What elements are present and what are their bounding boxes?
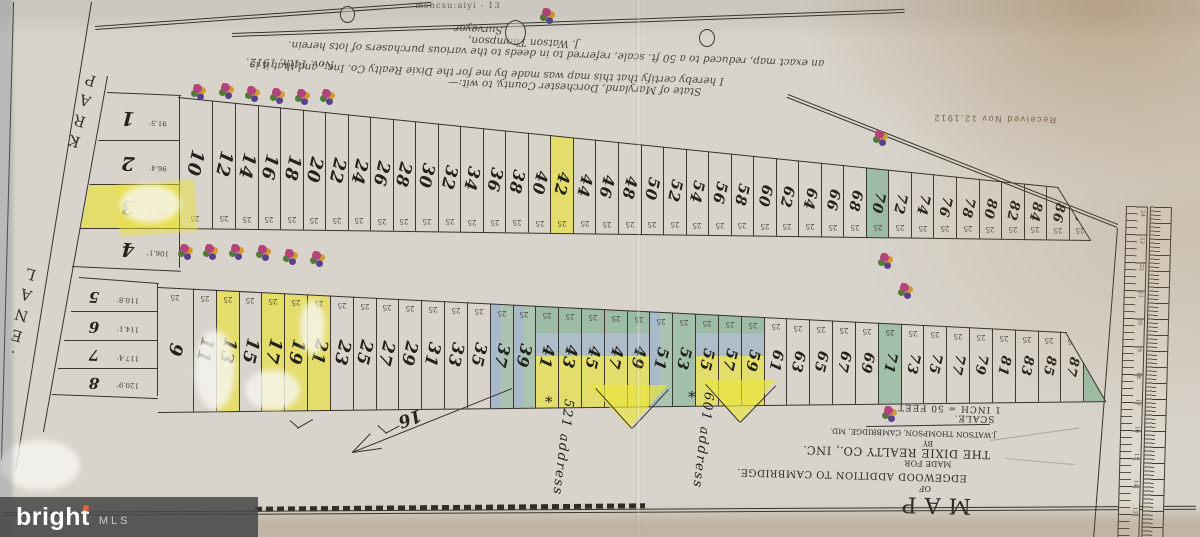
lot-depth-dim: 91.5' <box>149 118 167 127</box>
lot-number: 17 <box>261 336 286 366</box>
flower-mark <box>193 84 202 93</box>
ruler-number: 21 <box>1137 291 1143 298</box>
lot-cell-39: 3925 <box>513 283 536 416</box>
lot-number: 1 <box>121 107 135 130</box>
lot-cell-75: 7525 <box>923 283 946 416</box>
lot-width-dim: 25 <box>269 297 278 305</box>
lot-cell-71: 7125 <box>878 283 901 416</box>
lot-number: 74 <box>912 193 932 217</box>
ruler-number: 16 <box>1134 426 1140 433</box>
lot-width-dim: 25 <box>513 218 522 226</box>
lot-number: 57 <box>719 347 742 373</box>
lot-width-dim: 25 <box>680 318 689 326</box>
sheet-left-border <box>1 2 14 460</box>
lot-width-dim: 25 <box>783 222 792 230</box>
lot-number: 6 <box>88 317 99 336</box>
flower-mark <box>297 89 306 98</box>
lot-width-dim: 25 <box>171 293 180 301</box>
lot-number: 54 <box>686 179 709 206</box>
grommet-hole <box>505 20 526 45</box>
lot-number: 28 <box>392 160 417 189</box>
lot-width-dim: 25 <box>246 296 255 304</box>
lot-number: 50 <box>641 176 664 203</box>
lot-number: 33 <box>444 341 468 370</box>
lot-width-dim: 25 <box>337 301 346 309</box>
lot-width-dim: 25 <box>355 216 364 224</box>
flower-mark <box>285 249 294 258</box>
faint-pencil-note: msncsu:aiyi - 13 <box>415 1 501 11</box>
lot-cell-36: 3625 <box>483 93 506 243</box>
asterisk-mark: * <box>688 388 696 406</box>
flower-mark <box>231 244 240 253</box>
lot-cell-18: 1825 <box>280 93 303 243</box>
lot-number: 10 <box>182 148 209 179</box>
lot-cell-79: 7925 <box>969 283 992 416</box>
flower-mark <box>312 251 321 260</box>
lot-cell-82: 8225 <box>1001 93 1024 243</box>
lot-cell-32: 3225 <box>438 93 461 243</box>
flower-mark <box>884 406 893 415</box>
lot-cell-12: 1225 <box>212 93 235 243</box>
lot-width-dim: 25 <box>873 223 882 231</box>
lot-row-even-10-88: 1025122514251625182520252225242526252825… <box>178 93 1091 243</box>
lot-width-dim: 25 <box>242 215 251 223</box>
flower-mark <box>322 89 331 98</box>
lot-width-dim: 25 <box>748 321 757 329</box>
lot-width-dim: 25 <box>220 214 229 222</box>
lot-depth-dim: 120.9' <box>116 381 138 390</box>
lot-number: 16 <box>257 152 282 182</box>
lot-number: 5 <box>88 288 99 307</box>
lot-number: 41 <box>535 343 559 371</box>
lot-cell-7: 7117.4' <box>44 340 157 368</box>
lot-width-dim: 25 <box>1031 225 1040 233</box>
street-letter: K <box>65 129 83 153</box>
lot-width-dim: 25 <box>292 298 301 306</box>
ruler-number: 17 <box>1134 399 1140 406</box>
lot-number: 77 <box>948 353 968 377</box>
lot-width-dim: 25 <box>896 223 905 231</box>
lot-number: 76 <box>935 194 955 218</box>
lot-width-dim: 25 <box>1053 226 1062 234</box>
lot-width-dim: 25 <box>977 333 986 341</box>
lot-width-dim: 25 <box>851 223 860 231</box>
lot-cell-73: 7325 <box>901 283 924 416</box>
lot-width-dim: 25 <box>1091 337 1100 345</box>
lot-cell-63: 6325 <box>786 283 809 416</box>
flower-mark <box>221 83 230 92</box>
grommet-hole <box>699 29 715 47</box>
lot-width-dim: 25 <box>693 221 702 229</box>
lot-cell-66: 6625 <box>821 93 844 243</box>
lot-cell-25: 2525 <box>353 283 376 416</box>
lot-cell-30: 3025 <box>415 93 438 243</box>
lot-width-dim: 25 <box>566 312 575 320</box>
lot-cell-50: 5025 <box>641 93 664 243</box>
lot-width-dim: 25 <box>490 218 499 226</box>
lot-number: 60 <box>754 183 776 209</box>
lot-cell-62: 6225 <box>776 93 799 243</box>
flower-mark <box>258 245 267 254</box>
lot-width-dim: 25 <box>332 216 341 224</box>
lot-width-dim: 25 <box>497 309 506 317</box>
lot-number: 9 <box>164 341 187 359</box>
lot-width-dim: 25 <box>648 220 657 228</box>
lot-number: 58 <box>731 182 754 208</box>
lot-cell-67: 6725 <box>832 283 855 416</box>
lot-width-dim: 25 <box>611 314 620 322</box>
lot-number: 82 <box>1003 199 1023 223</box>
lot-number: 68 <box>845 189 866 214</box>
pencil-scribble <box>1005 458 1075 465</box>
lot-cell-8: 8120.9' <box>44 368 157 395</box>
lot-number: 2 <box>121 152 135 175</box>
lot-cell-84: 8425 <box>1024 93 1047 243</box>
lot-cell-83: 8325 <box>1015 283 1038 416</box>
lot-width-dim: 25 <box>986 225 995 233</box>
title-map: MAP <box>880 491 986 519</box>
ruler-number: 15 <box>1133 453 1139 460</box>
lot-number: 80 <box>980 197 1000 221</box>
lot-width-dim: 25 <box>625 220 634 228</box>
lot-number: 66 <box>822 187 844 212</box>
lot-number: 23 <box>329 338 354 368</box>
lot-number: 65 <box>810 349 832 374</box>
lot-number: 42 <box>550 170 574 198</box>
lot-width-dim: 25 <box>580 219 589 227</box>
lot-width-dim: 25 <box>451 306 460 314</box>
lot-width-dim: 25 <box>445 217 454 225</box>
lot-depth-dim: 114.1' <box>116 325 138 334</box>
ruler-number: 18 <box>1135 372 1141 379</box>
lot-width-dim: 25 <box>520 310 529 318</box>
lot-width-dim: 25 <box>360 302 369 310</box>
lot-cell-29: 2925 <box>398 283 421 416</box>
flower-mark <box>542 8 551 17</box>
lot-number: 67 <box>833 350 855 375</box>
lot-number: 31 <box>421 340 446 369</box>
lot-width-dim: 25 <box>558 219 567 227</box>
lot-width-dim: 25 <box>603 220 612 228</box>
lot-width-dim: 25 <box>715 221 724 229</box>
lot-depth-dim: 96.4' <box>149 163 167 172</box>
lot-width-dim: 25 <box>954 332 963 340</box>
lot-number: 71 <box>879 351 899 376</box>
lot-number: 73 <box>902 351 922 376</box>
lot-cell-43: 4325 <box>558 283 581 416</box>
whiteout-smudge <box>0 440 80 490</box>
lot-width-dim: 25 <box>1022 335 1031 343</box>
lot-number: 38 <box>505 168 529 196</box>
lot-width-dim: 25 <box>265 215 274 223</box>
flower-mark <box>900 283 909 292</box>
lot-number: 75 <box>925 352 945 376</box>
lot-cell-88: 8825 <box>1069 93 1092 243</box>
lot-number: 45 <box>581 344 605 372</box>
lot-width-dim: 25 <box>703 319 712 327</box>
lot-number: 8 <box>88 373 99 392</box>
lot-width-dim: 25 <box>310 216 319 224</box>
street-name-park: PARK <box>65 68 99 152</box>
lot-number: 70 <box>867 190 887 215</box>
lot-number: 59 <box>741 348 764 374</box>
lot-cell-14: 1425 <box>235 93 258 243</box>
lot-number: 7 <box>88 346 99 365</box>
lot-number: 64 <box>799 186 821 212</box>
lot-number: 81 <box>994 354 1014 378</box>
lot-width-dim: 25 <box>535 219 544 227</box>
lot-width-dim: 25 <box>400 217 409 225</box>
grommet-hole <box>340 6 355 23</box>
lot-cell-87: 8725 <box>1060 283 1083 416</box>
lot-number: 43 <box>558 343 582 371</box>
lot-width-dim: 25 <box>670 220 679 228</box>
title-made-for: MADE FOR <box>900 458 956 468</box>
title-scale-label: SCALE. <box>946 412 1002 423</box>
ruler-number: 13 <box>1131 507 1137 514</box>
lot-number: 72 <box>890 192 910 217</box>
lot-width-dim: 25 <box>794 324 803 332</box>
flower-mark <box>247 86 256 95</box>
lot-number: 4 <box>121 237 135 260</box>
plat-map-photo: msncsu:aiyi - 13 Received Nov 12.1912 Su… <box>0 0 1200 537</box>
lot-width-dim: 25 <box>999 334 1008 342</box>
lot-cell-23: 2325 <box>330 283 353 416</box>
lot-width-dim: 25 <box>223 295 232 303</box>
whiteout-smudge <box>120 185 180 223</box>
lot-width-dim: 25 <box>377 217 386 225</box>
lot-number: 47 <box>604 344 628 371</box>
lot-cell-86: 8625 <box>1046 93 1069 243</box>
lot-cell-2: 296.4' <box>64 140 179 184</box>
flower-mark <box>875 130 884 139</box>
ruler-number: 20 <box>1136 318 1142 325</box>
lot-number: 61 <box>765 348 787 374</box>
lot-width-dim: 25 <box>840 326 849 334</box>
title-rule <box>866 424 990 428</box>
lot-cell-54: 5425 <box>686 93 709 243</box>
lot-cell-5: 5110.8' <box>44 282 157 311</box>
lot-number: 32 <box>437 163 462 192</box>
lot-width-dim: 25 <box>468 218 477 226</box>
lot-cell-44: 4425 <box>573 93 596 243</box>
lot-cell-9: 925 <box>158 283 193 416</box>
watermark-brand: bright <box>16 503 90 532</box>
lot-number: 62 <box>777 185 799 211</box>
lot-width-dim: 25 <box>941 224 950 232</box>
whiteout-smudge <box>195 330 235 410</box>
lot-width-dim: 25 <box>406 304 415 312</box>
lot-number: 46 <box>595 173 619 200</box>
lot-width-dim: 25 <box>918 224 927 232</box>
lot-cell-52: 5225 <box>663 93 686 243</box>
lot-cell-65: 6525 <box>809 283 832 416</box>
lot-number: 52 <box>663 177 686 204</box>
lot-width-dim: 25 <box>806 222 815 230</box>
lot-cell-42: 4225 <box>550 93 573 243</box>
lot-width-dim: 25 <box>908 329 917 337</box>
whiteout-smudge <box>300 300 325 355</box>
lot-number: 55 <box>696 347 719 374</box>
lot-width-dim: 25 <box>200 294 209 302</box>
lot-width-dim: 25 <box>828 223 837 231</box>
lot-width-dim: 25 <box>760 222 769 230</box>
title-surveyor: J.WATSON THOMPSON, CAMBRIDGE, MD. <box>860 427 996 440</box>
lot-cell-27: 2725 <box>376 283 399 416</box>
lot-cell-16: 1625 <box>258 93 281 243</box>
lot-width-dim: 25 <box>588 313 597 321</box>
lot-number: 15 <box>238 336 263 366</box>
lot-number: 63 <box>788 349 810 375</box>
lot-cell-20: 2025 <box>303 93 326 243</box>
lot-number: 40 <box>528 169 552 197</box>
lot-cell-81: 8125 <box>992 283 1015 416</box>
lot-cell-58: 5825 <box>731 93 754 243</box>
ruler-number: 23 <box>1139 237 1145 244</box>
lot-number: 29 <box>398 340 423 369</box>
lot-cell-77: 7725 <box>946 283 969 416</box>
pencil-scribble <box>990 427 1079 441</box>
lot-cell-78: 7825 <box>956 93 979 243</box>
lot-width-dim: 25 <box>931 330 940 338</box>
lot-cell-76: 7625 <box>933 93 956 243</box>
lot-cell-56: 5625 <box>708 93 731 243</box>
asterisk-mark: * <box>545 393 553 411</box>
watermark-accent-dot <box>83 505 89 511</box>
lot-cell-38: 3825 <box>505 93 528 243</box>
lot-cell-34: 3425 <box>460 93 483 243</box>
lot-cell-60: 6025 <box>753 93 776 243</box>
lot-number: 78 <box>958 196 978 220</box>
lot-cell-46: 4625 <box>595 93 618 243</box>
lot-width-dim: 25 <box>1008 225 1017 233</box>
lot-width-dim: 25 <box>862 327 871 335</box>
lot-cell-85: 8525 <box>1038 283 1061 416</box>
lot-cell-31: 3125 <box>421 283 444 416</box>
lot-cell-61: 6125 <box>764 283 787 416</box>
lot-width-dim: 25 <box>287 215 296 223</box>
lot-cell-64: 6425 <box>798 93 821 243</box>
lot-cell-72: 7225 <box>888 93 911 243</box>
lot-number: 34 <box>460 165 484 193</box>
lot-width-dim: 25 <box>817 325 826 333</box>
flower-mark <box>880 253 889 262</box>
sheet-top-line-main <box>232 9 905 37</box>
lot-cell-80: 8025 <box>979 93 1002 243</box>
lot-width-dim: 25 <box>738 221 747 229</box>
lot-width-dim: 25 <box>657 317 666 325</box>
lot-depth-dim: 110.8' <box>116 295 138 304</box>
flower-mark <box>180 244 189 253</box>
lot-width-dim: 25 <box>771 322 780 330</box>
lot-cell-40: 4025 <box>528 93 551 243</box>
lot-number: 85 <box>1040 355 1059 378</box>
lot-width-dim: 25 <box>474 307 483 315</box>
lot-width-dim: 25 <box>885 328 894 336</box>
lot-number: 24 <box>347 158 372 188</box>
lot-width-dim: 25 <box>963 224 972 232</box>
ink-check-mark <box>297 419 313 429</box>
lot-number: 51 <box>650 346 673 373</box>
ruler-number: 19 <box>1136 345 1142 352</box>
scale-ruler: 242322212019181716151413 <box>1117 206 1172 537</box>
ruler-number: 14 <box>1132 480 1138 487</box>
lot-width-dim: 25 <box>725 320 734 328</box>
brightmls-watermark: bright MLS <box>0 497 258 537</box>
ruler-number: 22 <box>1138 264 1144 271</box>
lot-cell-69: 6925 <box>855 283 878 416</box>
lot-number: 86 <box>1048 202 1067 225</box>
whiteout-smudge <box>245 370 300 410</box>
lot-number: 37 <box>490 342 514 370</box>
lot-number: 53 <box>673 346 696 373</box>
ruler-number: 24 <box>1139 210 1145 217</box>
lot-cell-26: 2625 <box>370 93 393 243</box>
lot-number: 79 <box>971 353 991 377</box>
lot-depth-dim: 106.1' <box>147 248 169 257</box>
paper-fold-crease <box>636 0 641 537</box>
lot-number: 83 <box>1017 354 1037 378</box>
lot-number: 69 <box>857 350 878 375</box>
lot-width-dim: 25 <box>429 305 438 313</box>
lot-width-dim: 25 <box>423 217 432 225</box>
lot-cell-28: 2825 <box>393 93 416 243</box>
lot-depth-dim: 117.4' <box>116 353 138 362</box>
lot-number: 20 <box>302 155 327 185</box>
lot-number: 44 <box>573 172 597 200</box>
flower-mark <box>272 88 281 97</box>
lot-cell-74: 7425 <box>911 93 934 243</box>
lot-number: 30 <box>414 162 439 191</box>
lot-number: 39 <box>512 342 536 370</box>
lot-number: 36 <box>483 166 507 194</box>
lot-width-dim: 25 <box>543 311 552 319</box>
lot-width-dim: 25 <box>383 303 392 311</box>
lot-width-dim: 25 <box>1045 336 1054 344</box>
lot-number: 56 <box>709 180 732 206</box>
lot-number: 84 <box>1026 200 1045 223</box>
watermark-suffix: MLS <box>99 515 131 527</box>
sheet-top-line-left <box>95 2 431 30</box>
lot-number: 35 <box>467 341 491 369</box>
flower-mark <box>205 244 214 253</box>
title-addition: EDGEWOOD ADDITION TO CAMBRIDGE. <box>797 468 967 483</box>
